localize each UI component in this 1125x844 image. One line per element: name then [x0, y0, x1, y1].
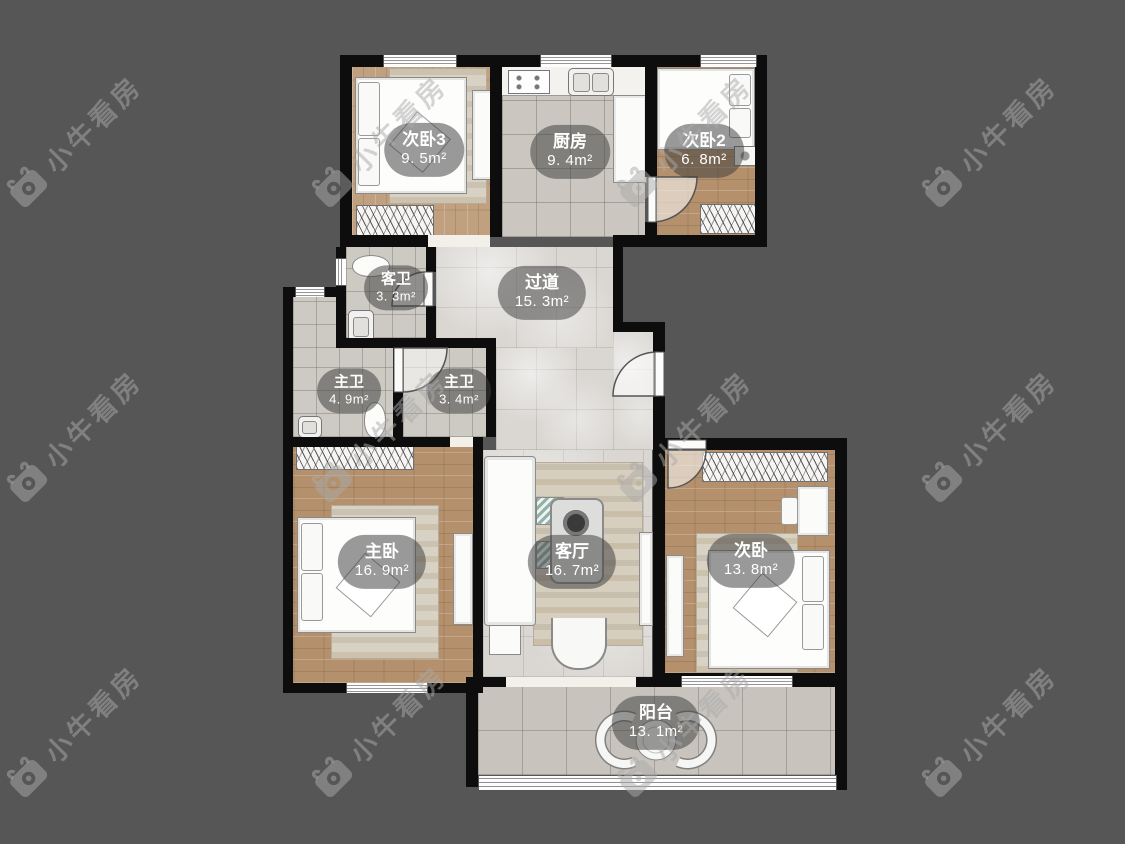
room-area: 13. 1m²	[629, 723, 683, 742]
room-name: 客厅	[545, 542, 599, 562]
door-leaf	[668, 440, 706, 449]
room-label-hallway: 过道 15. 3m²	[498, 266, 586, 320]
room-name: 次卧3	[401, 130, 447, 150]
room-area: 13. 8m²	[724, 561, 778, 580]
room-name: 次卧2	[681, 131, 727, 151]
room-name: 过道	[515, 273, 569, 293]
room-label-master-bathroom-2: 主卫 3. 4m²	[427, 368, 491, 413]
room-area: 9. 4m²	[547, 152, 593, 171]
room-area: 4. 9m²	[329, 391, 369, 407]
door-leaf	[394, 348, 403, 392]
room-name: 厨房	[547, 132, 593, 152]
room-name: 阳台	[629, 703, 683, 723]
room-area: 15. 3m²	[515, 293, 569, 312]
door-leaf	[655, 352, 664, 396]
room-label-bedroom3: 次卧3 9. 5m²	[384, 123, 464, 177]
room-label-bedroom2: 次卧2 6. 8m²	[664, 124, 744, 178]
room-area: 16. 9m²	[355, 562, 409, 581]
room-area: 3. 3m²	[376, 288, 416, 304]
room-area: 3. 4m²	[439, 391, 479, 407]
room-area: 6. 8m²	[681, 151, 727, 170]
door-arc	[652, 177, 697, 222]
room-name: 主卫	[439, 373, 479, 391]
room-label-balcony: 阳台 13. 1m²	[612, 696, 700, 750]
room-label-living-room: 客厅 16. 7m²	[528, 535, 616, 589]
door-arc	[668, 450, 706, 488]
room-label-guest-bathroom: 客卫 3. 3m²	[364, 265, 428, 310]
door-leaf	[648, 177, 656, 222]
room-label-kitchen: 厨房 9. 4m²	[530, 125, 610, 179]
room-label-master-bathroom-1: 主卫 4. 9m²	[317, 368, 381, 413]
floor-plan-canvas: 次卧3 9. 5m² 厨房 9. 4m² 次卧2 6. 8m² 客卫 3. 3m…	[0, 0, 1125, 844]
entry-door-arc	[613, 352, 657, 396]
room-label-master-bedroom: 主卧 16. 9m²	[338, 535, 426, 589]
room-label-bedroom: 次卧 13. 8m²	[707, 534, 795, 588]
room-area: 16. 7m²	[545, 562, 599, 581]
room-name: 客卫	[376, 270, 416, 288]
room-name: 次卧	[724, 541, 778, 561]
room-name: 主卧	[355, 542, 409, 562]
room-area: 9. 5m²	[401, 150, 447, 169]
room-name: 主卫	[329, 373, 369, 391]
